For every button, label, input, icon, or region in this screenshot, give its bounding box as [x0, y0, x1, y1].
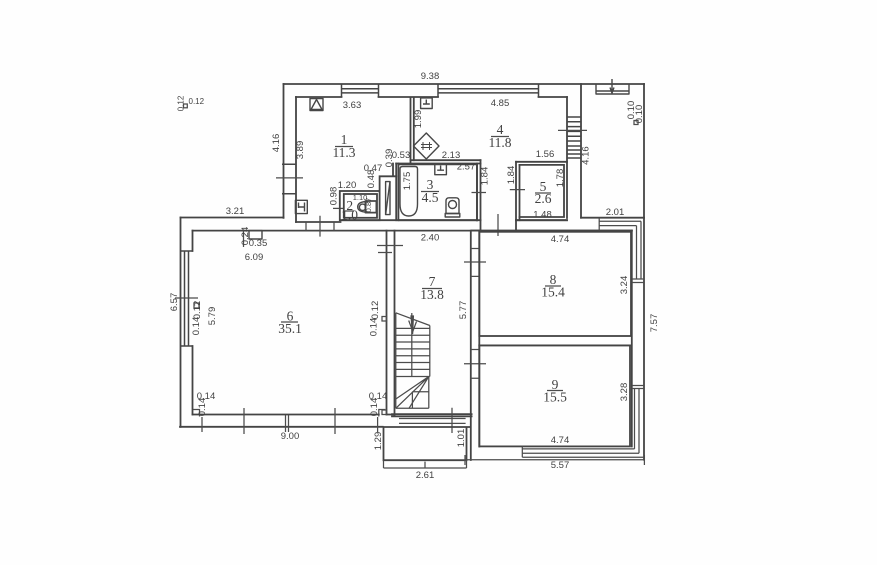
- svg-text:2.40: 2.40: [421, 233, 440, 244]
- svg-text:2.13: 2.13: [442, 150, 461, 161]
- svg-text:0.12: 0.12: [370, 301, 381, 320]
- svg-text:1.01: 1.01: [456, 429, 467, 448]
- svg-text:1.75: 1.75: [402, 172, 413, 191]
- svg-text:3.21: 3.21: [226, 206, 245, 217]
- svg-text:2.01: 2.01: [606, 207, 625, 218]
- svg-text:1.99: 1.99: [413, 110, 424, 129]
- svg-text:5.79: 5.79: [207, 307, 218, 326]
- svg-text:35.1: 35.1: [278, 321, 302, 336]
- svg-text:15.5: 15.5: [543, 390, 567, 405]
- svg-text:1.20: 1.20: [338, 180, 357, 191]
- svg-text:1.29: 1.29: [373, 432, 384, 451]
- svg-text:0.14: 0.14: [369, 318, 380, 337]
- svg-text:0.35: 0.35: [249, 238, 268, 249]
- svg-text:3.63: 3.63: [343, 100, 362, 111]
- svg-text:0.12: 0.12: [189, 97, 205, 106]
- svg-text:0.14: 0.14: [191, 317, 202, 336]
- svg-text:9.38: 9.38: [421, 71, 440, 82]
- svg-text:4.5: 4.5: [422, 190, 439, 205]
- svg-text:1.84: 1.84: [506, 166, 517, 185]
- svg-text:0.12: 0.12: [192, 301, 203, 320]
- svg-text:5.77: 5.77: [458, 301, 469, 320]
- svg-text:1.84: 1.84: [480, 167, 491, 186]
- svg-text:0.98: 0.98: [329, 187, 340, 206]
- svg-text:6.09: 6.09: [245, 252, 264, 263]
- svg-text:0.48: 0.48: [366, 170, 377, 189]
- svg-text:0.39: 0.39: [384, 149, 395, 168]
- svg-text:4.74: 4.74: [551, 435, 570, 446]
- svg-text:2.61: 2.61: [416, 470, 435, 481]
- svg-text:15.4: 15.4: [541, 285, 565, 300]
- svg-text:3.24: 3.24: [619, 276, 630, 295]
- svg-text:3.89: 3.89: [295, 141, 306, 160]
- svg-text:0.87: 0.87: [364, 198, 373, 213]
- svg-text:4.16: 4.16: [271, 134, 282, 153]
- svg-text:6.57: 6.57: [169, 293, 180, 312]
- svg-text:0.12: 0.12: [177, 95, 186, 111]
- svg-text:1.78: 1.78: [555, 169, 566, 188]
- svg-text:1.0: 1.0: [341, 208, 358, 223]
- svg-text:11.3: 11.3: [332, 145, 355, 160]
- svg-text:5.57: 5.57: [551, 460, 570, 471]
- svg-text:2.6: 2.6: [535, 191, 552, 206]
- svg-text:0.14: 0.14: [369, 398, 380, 417]
- svg-text:4.85: 4.85: [491, 98, 510, 109]
- svg-text:13.8: 13.8: [420, 287, 444, 302]
- svg-text:2.57: 2.57: [457, 162, 476, 173]
- svg-text:9.00: 9.00: [281, 431, 300, 442]
- svg-text:1.56: 1.56: [536, 149, 555, 160]
- svg-text:4.74: 4.74: [551, 234, 570, 245]
- svg-text:7.57: 7.57: [649, 314, 660, 333]
- svg-text:3.28: 3.28: [619, 383, 630, 402]
- svg-text:4.16: 4.16: [581, 146, 592, 165]
- svg-text:11.8: 11.8: [488, 135, 511, 150]
- svg-text:0.14: 0.14: [197, 398, 208, 417]
- svg-text:1.48: 1.48: [533, 210, 552, 221]
